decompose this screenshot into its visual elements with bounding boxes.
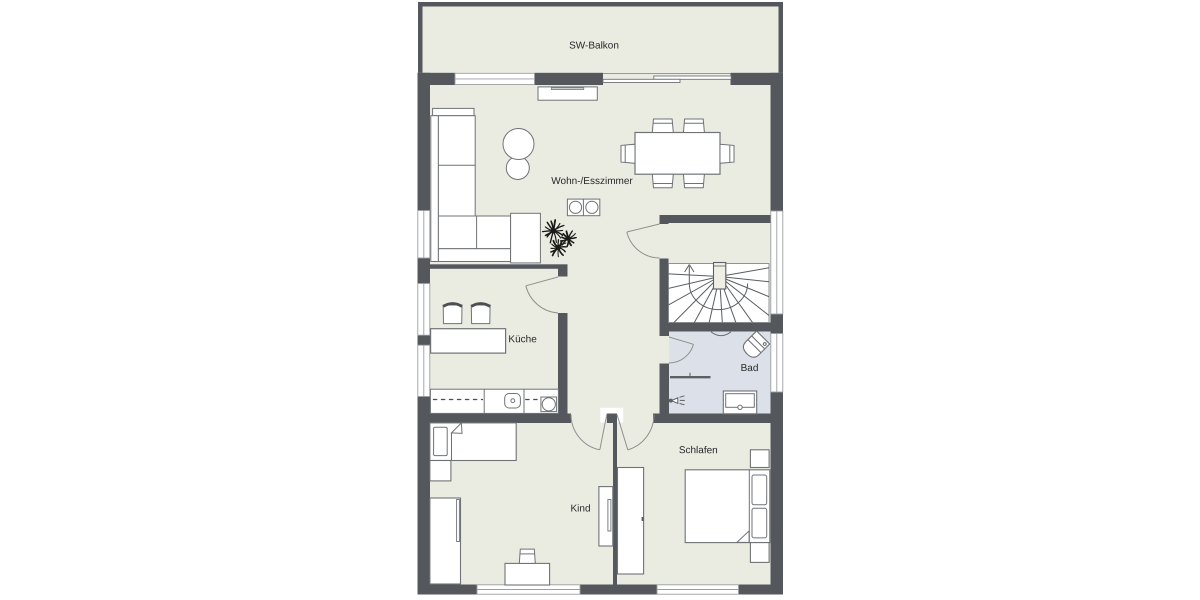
svg-text:SW-Balkon: SW-Balkon <box>569 40 619 51</box>
svg-text:Wohn-/Esszimmer: Wohn-/Esszimmer <box>551 176 633 187</box>
svg-text:Bad: Bad <box>741 363 759 374</box>
svg-text:Küche: Küche <box>508 334 537 345</box>
svg-text:Schlafen: Schlafen <box>679 445 718 456</box>
svg-text:Kind: Kind <box>570 503 590 514</box>
